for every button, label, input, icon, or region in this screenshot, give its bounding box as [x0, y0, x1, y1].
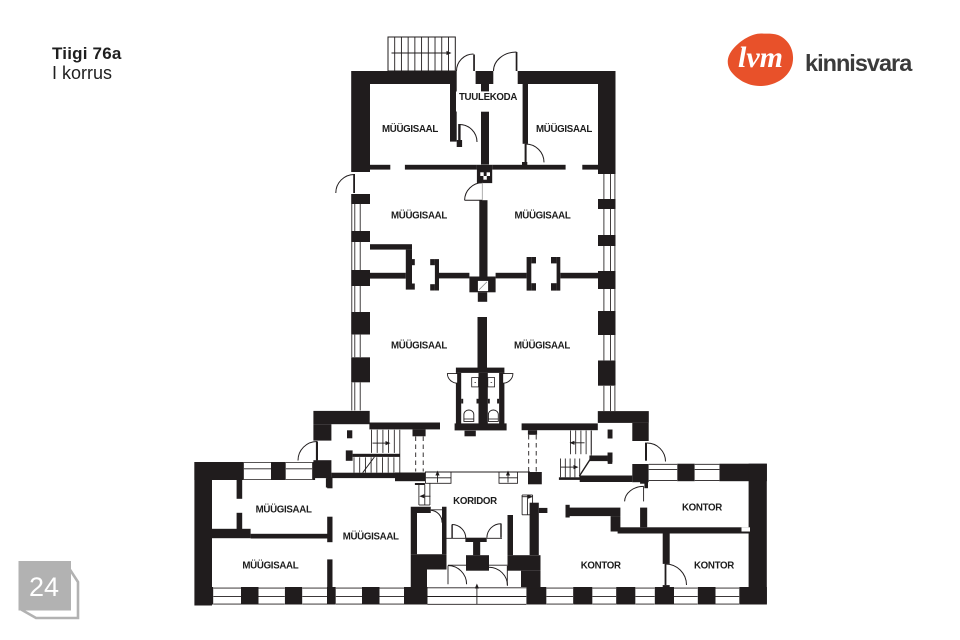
svg-text:MÜÜGISAAL: MÜÜGISAAL — [391, 341, 447, 352]
svg-text:MÜÜGISAAL: MÜÜGISAAL — [536, 124, 592, 135]
svg-text:MÜÜGISAAL: MÜÜGISAAL — [514, 341, 570, 352]
svg-text:MÜÜGISAAL: MÜÜGISAAL — [515, 211, 571, 222]
svg-text:KORIDOR: KORIDOR — [453, 496, 497, 507]
svg-text:MÜÜGISAAL: MÜÜGISAAL — [343, 531, 399, 542]
svg-text:MÜÜGISAAL: MÜÜGISAAL — [256, 504, 312, 515]
svg-text:MÜÜGISAAL: MÜÜGISAAL — [391, 211, 447, 222]
svg-text:KONTOR: KONTOR — [581, 560, 621, 571]
svg-text:KONTOR: KONTOR — [694, 560, 734, 571]
svg-text:MÜÜGISAAL: MÜÜGISAAL — [382, 124, 438, 135]
svg-text:MÜÜGISAAL: MÜÜGISAAL — [242, 561, 298, 572]
svg-text:KONTOR: KONTOR — [682, 503, 722, 514]
svg-text:TUULEKODA: TUULEKODA — [459, 92, 517, 103]
